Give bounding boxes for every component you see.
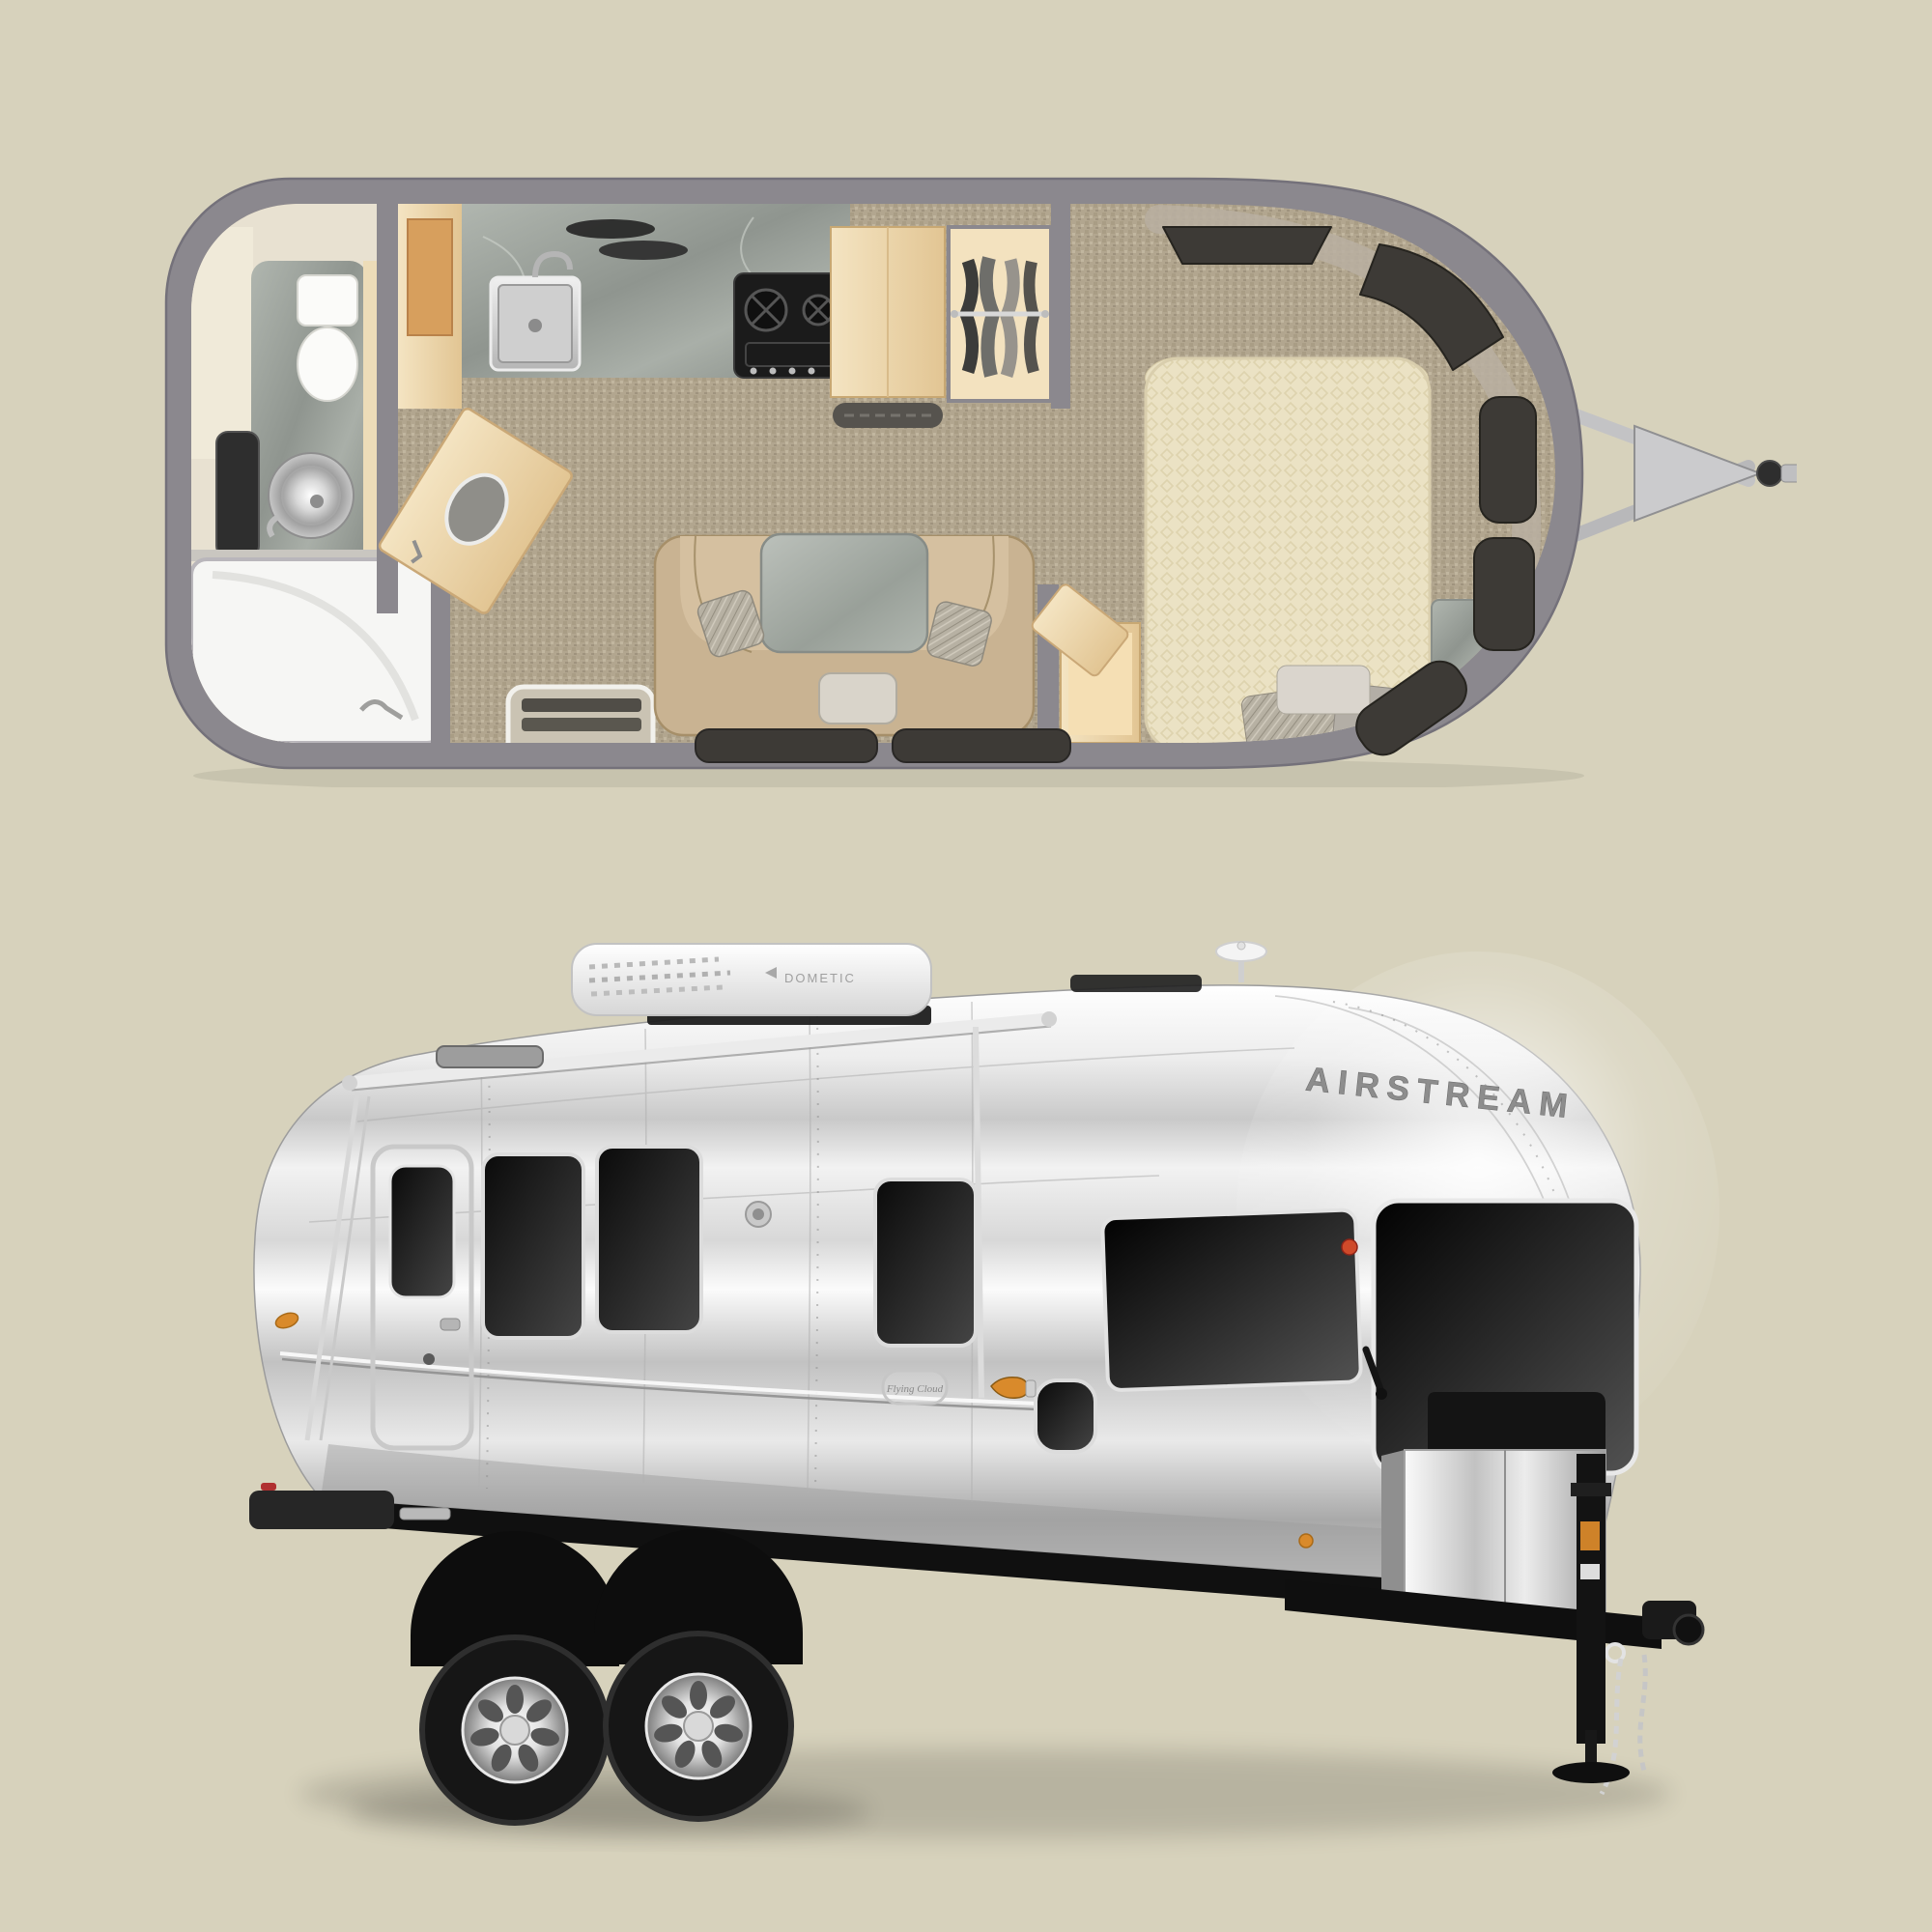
lounge-sofa (655, 534, 1034, 735)
window (1480, 397, 1536, 523)
counter-dish (599, 241, 688, 260)
hub (684, 1712, 713, 1741)
window (1163, 227, 1331, 264)
window (875, 1179, 976, 1346)
window (597, 1147, 701, 1332)
floorplan-hitch-tongue (1563, 411, 1797, 540)
window (483, 1154, 583, 1338)
bath-mirror (216, 432, 259, 557)
kitchen (462, 204, 850, 378)
door-window (390, 1166, 454, 1297)
rear-bumper (249, 1491, 394, 1529)
roof-vent-front (1070, 975, 1202, 992)
model-badge-label: Flying Cloud (886, 1383, 944, 1395)
small-window (1036, 1380, 1095, 1452)
window (696, 729, 877, 762)
hanging-clothes (986, 258, 993, 376)
floorplan-top-view (155, 169, 1797, 787)
hanging-clothes (1029, 262, 1034, 372)
jack-warning-sticker (1580, 1521, 1600, 1550)
wardrobe-wall (1051, 204, 1070, 409)
counter-dish (566, 219, 655, 239)
jack-label (1580, 1564, 1600, 1579)
hitch-plate (1634, 426, 1760, 521)
vanity-trim (363, 261, 377, 572)
roof-vent-rear (437, 1046, 543, 1067)
tongue-jack (1577, 1454, 1605, 1744)
window (1474, 538, 1534, 650)
hitch-coupler-knob (1757, 461, 1782, 486)
antenna (1216, 942, 1266, 982)
wardrobe (949, 227, 1051, 401)
hub (500, 1716, 529, 1745)
toilet-bowl (298, 327, 357, 401)
bed-pillow (1277, 666, 1370, 714)
door-lock (423, 1353, 435, 1365)
wheel-shadow (348, 1786, 869, 1836)
ac-brand-label: DOMETIC (784, 971, 856, 985)
roof-ac-unit: DOMETIC (572, 944, 931, 1025)
tail-reflector (261, 1483, 276, 1491)
toilet-tank (298, 275, 357, 326)
cooktop (734, 273, 844, 378)
wheel (606, 1634, 791, 1819)
door-step (400, 1508, 450, 1520)
ac-shroud (572, 944, 931, 1015)
dinette-table (761, 534, 927, 652)
tank-cover-lid (1428, 1392, 1605, 1450)
hanging-clothes (1007, 260, 1013, 376)
safety-chain (1640, 1655, 1645, 1771)
trailer-exterior-render: DOMETIC AIRSTREAM Flying Cloud (193, 903, 1787, 1918)
hitch-stinger (1781, 465, 1797, 482)
jack-foot (1552, 1762, 1630, 1783)
window (893, 729, 1070, 762)
shower-pan (191, 559, 442, 743)
accent-pillow (819, 673, 896, 724)
marker-light (1299, 1534, 1313, 1548)
door-handle (440, 1319, 460, 1330)
galley-shelf (398, 204, 462, 409)
clearance-light (1342, 1239, 1357, 1255)
coupler-ball-socket (1674, 1615, 1703, 1644)
wheel (422, 1637, 608, 1823)
airstream-product-image: DOMETIC AIRSTREAM Flying Cloud (0, 0, 1932, 1932)
front-window (1102, 1209, 1361, 1390)
